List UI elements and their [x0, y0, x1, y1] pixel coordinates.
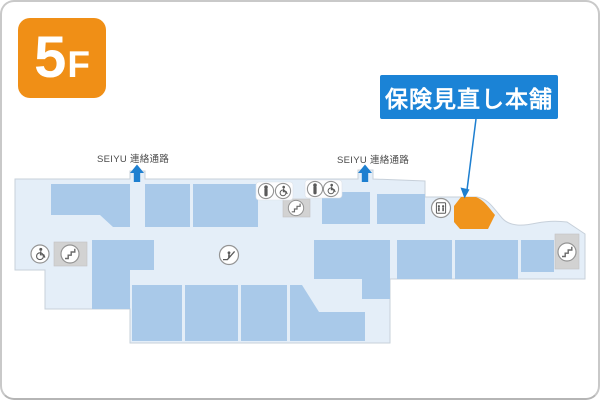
store-block: [193, 184, 258, 227]
stairs-icon: [61, 245, 79, 263]
store-block: [455, 240, 518, 279]
toilet-icon: [307, 181, 322, 196]
store-block: [185, 285, 238, 341]
escalator-icon: [220, 246, 239, 265]
stairs-icon: [288, 200, 303, 215]
accessible-toilet-icon: [275, 183, 290, 198]
page: 5 F SEIYU 連絡通路 SEIYU 連絡通路 保険見直し本舗: [0, 0, 600, 400]
passage-label-right: SEIYU 連絡通路: [337, 152, 409, 166]
floor-number: 5: [34, 18, 66, 98]
store-block: [521, 240, 554, 272]
store-block: [145, 184, 190, 227]
stairs-icon: [558, 243, 576, 261]
map-card: 5 F SEIYU 連絡通路 SEIYU 連絡通路 保険見直し本舗: [0, 0, 600, 400]
store-block: [377, 194, 425, 224]
callout-pointer-line: [467, 119, 476, 190]
store-callout[interactable]: 保険見直し本舗: [380, 75, 558, 119]
passage-label-left: SEIYU 連絡通路: [97, 151, 169, 165]
toilet-icon: [258, 183, 273, 198]
floor-badge: 5 F: [18, 18, 106, 98]
highlighted-store[interactable]: [454, 197, 495, 229]
store-callout-label: 保険見直し本舗: [385, 80, 553, 114]
store-block: [241, 285, 287, 341]
store-block: [132, 285, 182, 341]
elevator-icon: [432, 199, 451, 218]
accessible-toilet-icon: [323, 181, 338, 196]
store-block: [397, 240, 452, 279]
accessible-icon: [31, 245, 49, 263]
floor-suffix: F: [67, 25, 90, 105]
